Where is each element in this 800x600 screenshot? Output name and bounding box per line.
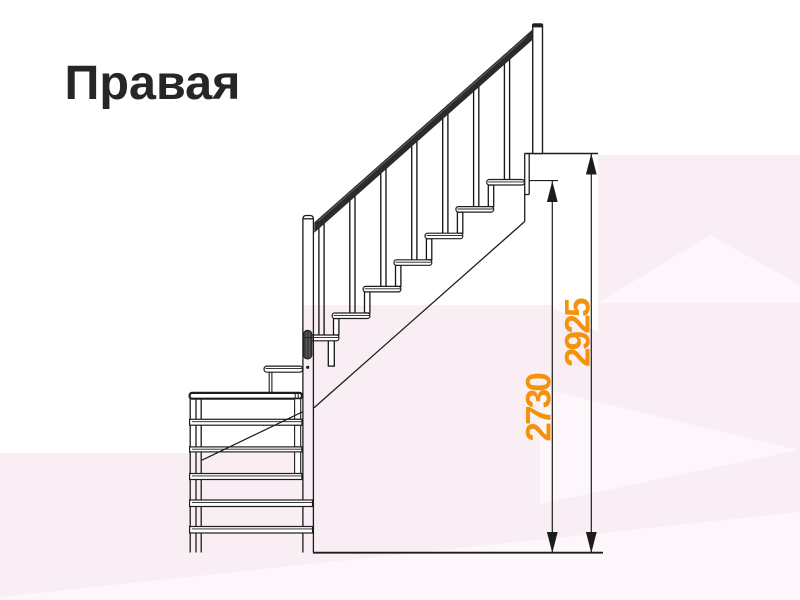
svg-text:Правая: Правая <box>65 56 241 110</box>
svg-text:2925: 2925 <box>558 298 597 367</box>
svg-text:2730: 2730 <box>520 373 559 442</box>
